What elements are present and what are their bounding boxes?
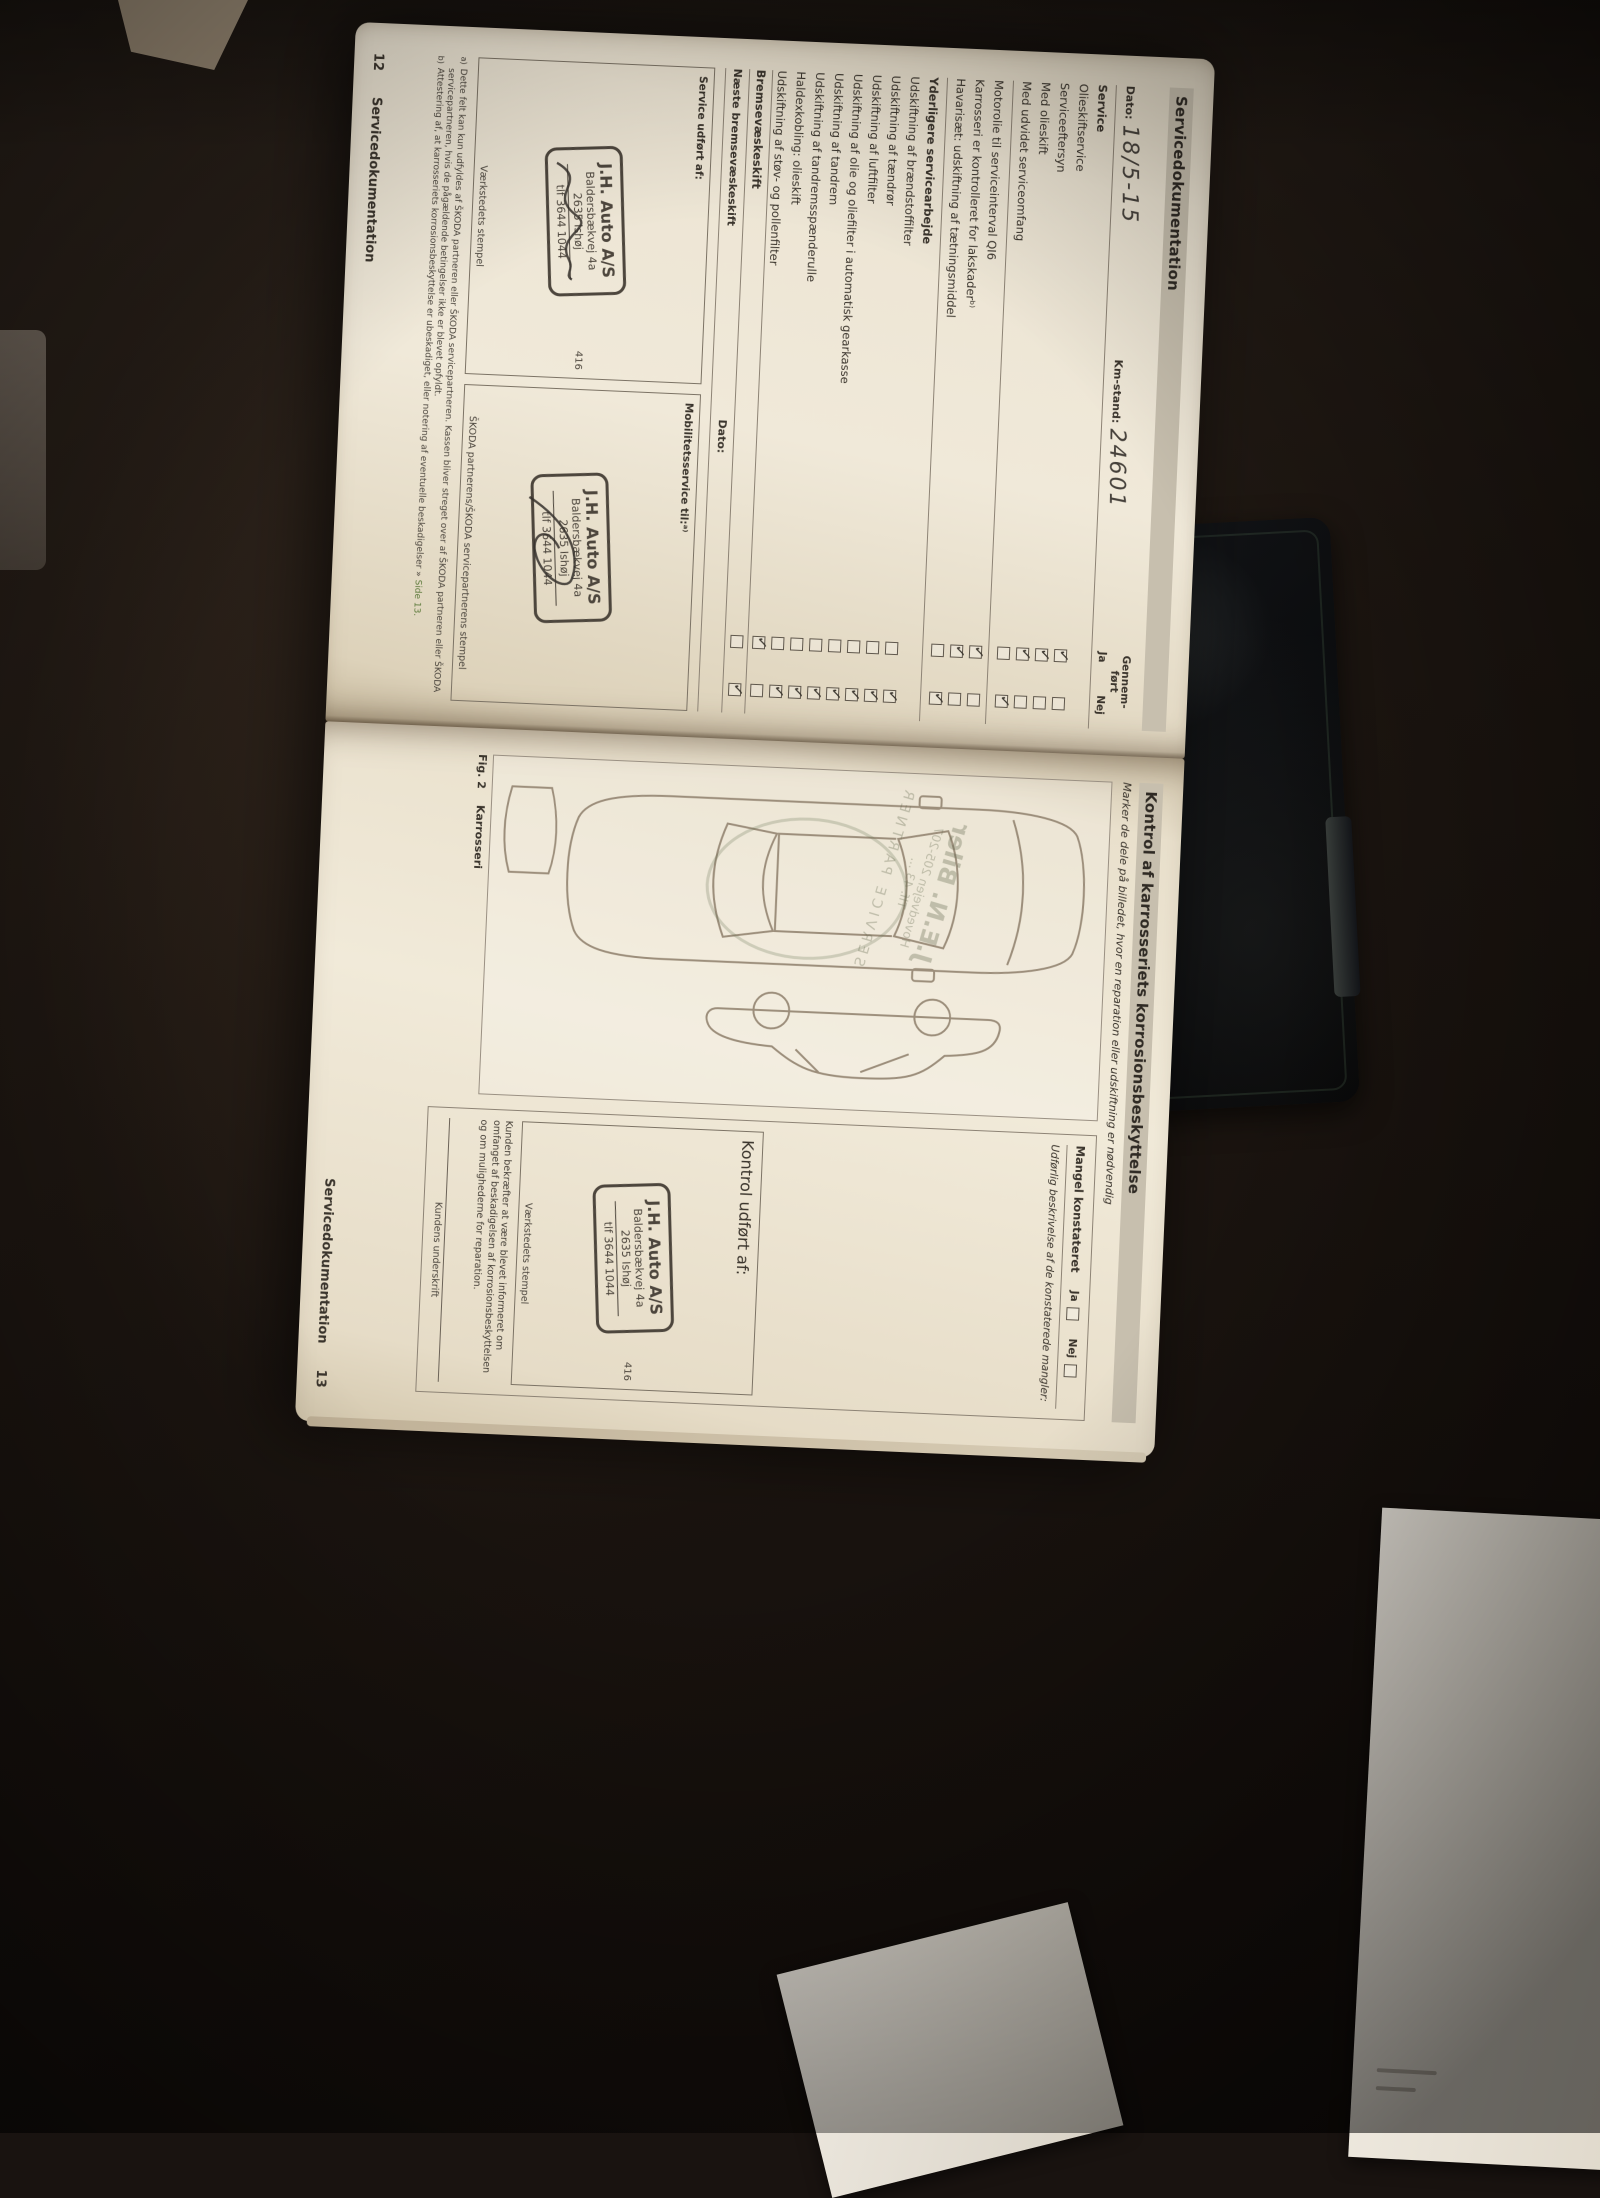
checkbox-nej	[1047, 679, 1068, 728]
defect-found-row: Mangel konstateret Ja Nej	[1055, 1145, 1087, 1410]
control-stamp-box: Kontrol udført af: J.H. Auto A/S Balders…	[511, 1121, 764, 1395]
side-13-reference: Side 13.	[411, 579, 423, 616]
date-field: Dato: 18/5-15	[1109, 85, 1146, 360]
workshop-stamp-caption: Værkstedets stempel	[469, 58, 494, 373]
checkbox-icon	[728, 682, 742, 696]
checkbox-icon	[969, 645, 983, 659]
checkbox-icon	[1054, 648, 1068, 662]
checkbox-icon	[1014, 695, 1028, 709]
footnote-a-mark: a)	[445, 56, 469, 65]
checkbox-icon	[883, 689, 897, 703]
checkbox-nej	[764, 666, 785, 715]
checkbox-icon	[845, 687, 859, 701]
further-items-list: Udskiftning af brændstoffilter Udskiftni…	[745, 70, 925, 720]
customer-confirmation-text: Kunden bekræfter at være blevet informer…	[465, 1119, 515, 1384]
stamp-phone: tlf 3644 1044	[600, 1201, 618, 1316]
control-workshop-stamp: J.H. Auto A/S Baldersbækvej 4a 2635 Ishø…	[592, 1183, 674, 1334]
checkbox-icon	[1016, 647, 1030, 661]
checkbox-icon	[750, 683, 764, 697]
date-label: Dato:	[1122, 85, 1136, 119]
checkbox-icon	[1035, 648, 1049, 662]
description-blank-area	[759, 1132, 1049, 1408]
checkbox-nej	[724, 665, 745, 714]
service-booklet: Servicedokumentation Dato: 18/5-15 Km-st…	[295, 22, 1215, 1458]
service-by-stamp-box: Service udført af: J.H. Auto A/S Balders…	[465, 57, 716, 384]
signature-scribble	[514, 480, 590, 613]
checkbox-nej	[962, 675, 983, 724]
mobility-service-label: Mobilitetsservice til:ᵃ⁾	[670, 403, 695, 702]
car-diagram	[479, 756, 1111, 1121]
checkbox-icon	[752, 635, 766, 649]
control-by-label: Kontrol udført af:	[728, 1140, 758, 1387]
km-field: Km-stand: 24601	[1097, 359, 1134, 634]
partner-stamp-caption: ŠKODA partnerens/ŠKODA servicepartnerens…	[454, 385, 479, 700]
checkbox-ja	[747, 618, 768, 667]
no-column-label: Nej	[1093, 681, 1106, 729]
checkbox-icon	[847, 639, 861, 653]
stamp-boxes-row: Service udført af: J.H. Auto A/S Balders…	[450, 57, 715, 711]
checkbox-icon	[1066, 1307, 1080, 1321]
page12-footer-label: Servicedokumentation	[361, 97, 383, 263]
km-label: Km-stand:	[1109, 359, 1125, 423]
car-figure-box: J.E.N. Biler Hovedvejen 205-207 Tlf. 43 …	[478, 755, 1112, 1122]
checkbox-icon	[1052, 696, 1066, 710]
km-handwritten-value: 24601	[1104, 428, 1130, 508]
figure-column: J.E.N. Biler Hovedvejen 205-207 Tlf. 43 …	[428, 752, 1112, 1121]
checkbox-icon	[771, 636, 785, 650]
checkbox-nej	[745, 666, 766, 715]
stamp-dealer-number: 416	[572, 351, 584, 371]
checkbox-ja	[726, 617, 747, 666]
checkbox-ja	[823, 621, 844, 670]
checkbox-icon	[807, 686, 821, 700]
checkbox-ja	[861, 623, 882, 672]
checkbox-icon	[788, 685, 802, 699]
checkbox-icon	[826, 687, 840, 701]
checkbox-nej	[990, 676, 1011, 725]
checkbox-icon	[730, 634, 744, 648]
page13-footer-label: Servicedokumentation	[314, 1178, 336, 1344]
checkbox-icon	[790, 637, 804, 651]
workshop-stamp-caption: Værkstedets stempel	[515, 1122, 537, 1384]
customer-signature-line: Kundens underskrift	[425, 1117, 451, 1381]
checkbox-icon	[769, 684, 783, 698]
checkbox-icon	[864, 688, 878, 702]
page13-footer: Servicedokumentation 13	[312, 1178, 336, 1388]
checkbox-icon	[948, 692, 962, 706]
checkbox-icon	[1064, 1364, 1078, 1378]
checkbox-ja	[804, 620, 825, 669]
checkbox-icon	[997, 646, 1011, 660]
checkbox-icon	[809, 638, 823, 652]
mobility-stamp-box: Mobilitetsservice til:ᵃ⁾ J.H. Auto A/S B…	[450, 384, 701, 711]
floor-patch	[0, 330, 46, 570]
defect-found-label: Mangel konstateret	[1068, 1145, 1088, 1273]
checkbox-ja	[785, 619, 806, 668]
page12-number: 12	[370, 53, 386, 72]
defect-nej-option: Nej	[1064, 1338, 1079, 1377]
yes-column-label: Ja	[1095, 633, 1108, 681]
checkbox-ja	[880, 623, 901, 672]
checkbox-ja	[945, 626, 966, 675]
stamp-dealer-number: 416	[621, 1362, 633, 1382]
loose-envelope	[1348, 1508, 1600, 2173]
page13-number: 13	[312, 1369, 328, 1388]
checkbox-ja	[1011, 629, 1032, 678]
paper-print-mark	[1377, 2068, 1437, 2075]
checkbox-icon	[885, 641, 899, 655]
service-by-label: Service udført af:	[684, 76, 709, 375]
page13-main: J.E.N. Biler Hovedvejen 205-207 Tlf. 43 …	[415, 752, 1112, 1421]
page12-footer: 12 Servicedokumentation	[361, 53, 385, 263]
date-handwritten-value: 18/5-15	[1117, 125, 1143, 225]
checkbox-nej	[1028, 678, 1049, 727]
checkbox-icon	[828, 639, 842, 653]
figure-caption-number: Fig. 2	[475, 754, 490, 789]
checkbox-icon	[866, 640, 880, 654]
stamp-dealer-name: J.H. Auto A/S	[643, 1200, 665, 1315]
stamp-street: Baldersbækvej 4a	[630, 1200, 646, 1315]
stamp-dealer-name: J.H. Auto A/S	[596, 162, 618, 277]
checkbox-icon	[931, 643, 945, 657]
signature-scribble	[534, 154, 600, 286]
checkbox-icon	[1033, 696, 1047, 710]
checkbox-ja	[926, 625, 947, 674]
inspection-form-column: Mangel konstateret Ja Nej Udførlig beskr…	[415, 1106, 1097, 1421]
ja-label: Ja	[1068, 1290, 1080, 1302]
checkbox-ja	[992, 628, 1013, 677]
checkbox-icon	[929, 691, 943, 705]
nej-label: Nej	[1065, 1338, 1078, 1358]
checkbox-nej	[924, 673, 945, 722]
footnote-b-mark: b)	[433, 55, 445, 64]
defect-ja-option: Ja	[1066, 1290, 1080, 1321]
checkbox-ja	[842, 622, 863, 671]
page-12-servicedokumentation: Servicedokumentation Dato: 18/5-15 Km-st…	[325, 22, 1215, 759]
done-column-header: Gennem- ført Ja Nej	[1093, 633, 1132, 730]
checkbox-icon	[995, 694, 1009, 708]
paper-print-mark	[1376, 2086, 1416, 2092]
page-13-korrosionskontrol: Kontrol af karrosseriets korrosionsbesky…	[295, 721, 1185, 1458]
checkbox-icon	[967, 693, 981, 707]
figure-caption-label: Karrosseri	[471, 805, 487, 870]
checkbox-icon	[950, 644, 964, 658]
